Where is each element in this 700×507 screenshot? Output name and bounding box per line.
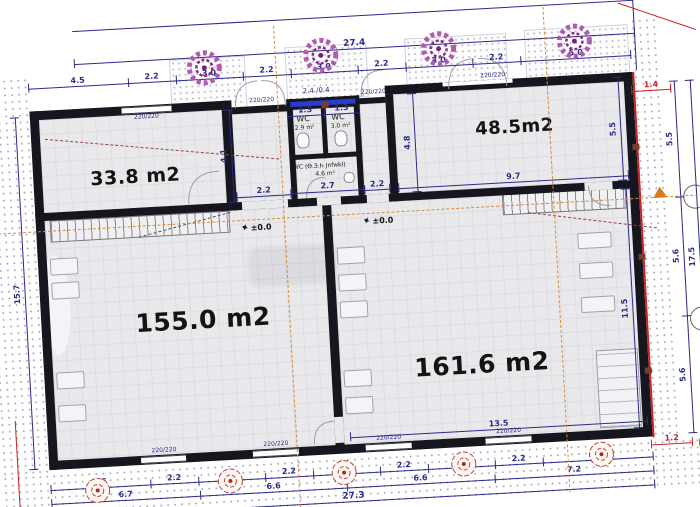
dim-top-total: 27.4 bbox=[342, 39, 367, 53]
furniture-block bbox=[50, 257, 79, 276]
tree-icon bbox=[180, 44, 228, 92]
furniture-block bbox=[343, 369, 372, 388]
desk-block bbox=[579, 261, 614, 279]
rose-icon bbox=[586, 438, 618, 470]
furniture-block bbox=[58, 404, 87, 423]
door-arc bbox=[232, 79, 261, 109]
dim-entry-right-width: 2.2 bbox=[364, 180, 391, 194]
furniture-block bbox=[338, 273, 367, 292]
level-marker-left: ✦±0.0 bbox=[240, 221, 272, 234]
wall-anchor bbox=[632, 144, 639, 150]
red-offset-bottom-right: 1.2 bbox=[651, 433, 694, 448]
wc-note-above: 2.4 /0.4 bbox=[303, 87, 330, 95]
desk-block bbox=[577, 231, 612, 249]
site-boundary-line bbox=[72, 0, 633, 32]
rose-icon bbox=[448, 448, 480, 480]
door-arc bbox=[311, 419, 337, 445]
furniture-block bbox=[345, 396, 374, 415]
desk-block bbox=[581, 295, 616, 313]
level-star-icon: ✦ bbox=[239, 222, 250, 235]
level-star-icon: ✦ bbox=[361, 215, 372, 228]
rose-icon bbox=[215, 465, 247, 497]
wall-anchor bbox=[645, 367, 652, 373]
wc-right-area: 3.0 m² bbox=[331, 123, 351, 130]
level-marker-right: ✦±0.0 bbox=[362, 215, 394, 228]
rose-icon bbox=[328, 457, 360, 489]
room-label-48-5: 48.5m2 bbox=[475, 114, 555, 139]
rose-icon bbox=[82, 475, 114, 507]
furniture-block bbox=[51, 281, 80, 300]
tree-icon bbox=[414, 24, 462, 72]
toilet-icon bbox=[334, 130, 348, 147]
furniture-block bbox=[340, 300, 369, 319]
tree-icon bbox=[550, 17, 598, 65]
tree-icon bbox=[297, 31, 345, 79]
axis-arrow-marker bbox=[653, 186, 668, 198]
furniture-block bbox=[337, 246, 366, 265]
toilet-icon bbox=[296, 132, 310, 149]
wall-anchor bbox=[638, 254, 645, 260]
doorway-gap bbox=[367, 194, 389, 203]
wc-lobby-area: 4.6 m² bbox=[315, 171, 335, 178]
door-arc bbox=[185, 169, 223, 205]
floor-plan-drawing: + bbox=[0, 0, 700, 507]
room-161 bbox=[331, 188, 643, 444]
door-arc bbox=[586, 182, 612, 208]
wc-left-area: 2.9 m² bbox=[295, 125, 315, 132]
furniture-block bbox=[56, 371, 85, 390]
floor-plan-screenshot: + bbox=[0, 0, 700, 507]
dim-bottom-total: 27.3 bbox=[341, 492, 366, 506]
